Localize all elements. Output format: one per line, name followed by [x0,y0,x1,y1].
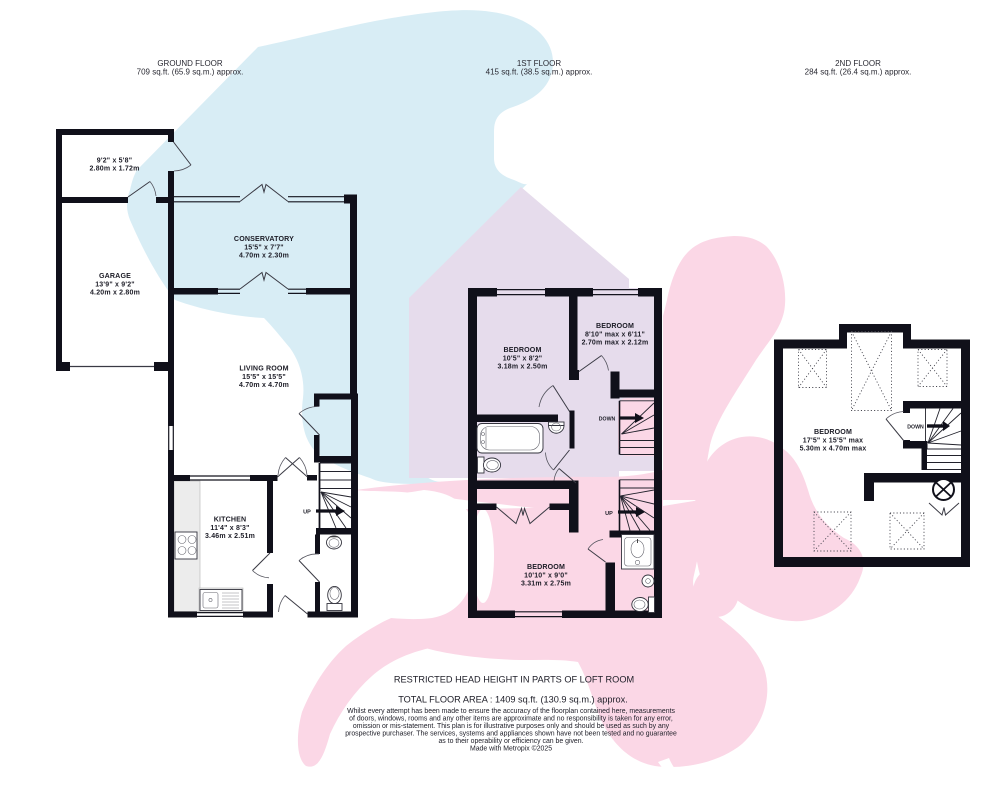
svg-text:13'9" x 9'2": 13'9" x 9'2" [95,282,135,289]
svg-text:10'10" x 9'0": 10'10" x 9'0" [524,573,568,580]
svg-text:15'5" x 15'5": 15'5" x 15'5" [242,374,286,381]
svg-text:CONSERVATORY: CONSERVATORY [234,235,294,243]
svg-text:2.80m x 1.72m: 2.80m x 1.72m [89,166,139,173]
svg-text:5.30m x 4.70m max: 5.30m x 4.70m max [800,446,867,453]
svg-text:284 sq.ft. (26.4 sq.m.) approx: 284 sq.ft. (26.4 sq.m.) approx. [805,68,912,77]
svg-text:2.70m max x 2.12m: 2.70m max x 2.12m [582,340,649,347]
svg-text:GARAGE: GARAGE [99,272,131,280]
svg-text:11'4" x 8'3": 11'4" x 8'3" [210,525,249,532]
svg-text:709 sq.ft. (65.9 sq.m.) approx: 709 sq.ft. (65.9 sq.m.) approx. [137,68,244,77]
svg-text:LIVING ROOM: LIVING ROOM [239,365,288,373]
svg-text:DOWN: DOWN [907,425,924,431]
svg-text:Made with Metropix ©2025: Made with Metropix ©2025 [470,745,552,753]
svg-text:KITCHEN: KITCHEN [214,516,247,524]
svg-text:4.70m x 2.30m: 4.70m x 2.30m [239,253,289,260]
svg-text:DOWN: DOWN [599,417,616,423]
svg-text:3.18m x 2.50m: 3.18m x 2.50m [497,364,547,371]
svg-text:8'10" max x 6'11": 8'10" max x 6'11" [585,332,645,339]
svg-text:UP: UP [605,511,613,517]
svg-text:BEDROOM: BEDROOM [814,428,852,436]
svg-text:4.70m x 4.70m: 4.70m x 4.70m [239,382,289,389]
svg-text:RESTRICTED HEAD HEIGHT IN PART: RESTRICTED HEAD HEIGHT IN PARTS OF LOFT … [394,675,634,685]
svg-text:9'2" x 5'8": 9'2" x 5'8" [97,158,133,165]
svg-text:BEDROOM: BEDROOM [596,322,634,330]
svg-text:prospective purchaser. The ser: prospective purchaser. The services, sys… [345,731,677,738]
svg-text:BEDROOM: BEDROOM [503,346,541,354]
svg-text:17'5" x 15'5" max: 17'5" x 15'5" max [803,438,863,445]
svg-text:UP: UP [303,510,311,516]
svg-text:10'5" x 8'2": 10'5" x 8'2" [503,356,543,363]
svg-text:omission or mis-statement. Thi: omission or mis-statement. This plan is … [353,723,670,730]
svg-text:BEDROOM: BEDROOM [527,563,565,571]
svg-text:4.20m x 2.80m: 4.20m x 2.80m [90,290,140,297]
svg-text:3.31m x 2.75m: 3.31m x 2.75m [521,581,571,588]
svg-text:TOTAL FLOOR AREA : 1409 sq.ft.: TOTAL FLOOR AREA : 1409 sq.ft. (130.9 sq… [398,695,628,705]
svg-text:3.46m x 2.51m: 3.46m x 2.51m [205,533,255,540]
svg-text:of doors, windows, rooms and a: of doors, windows, rooms and any other i… [349,716,673,723]
svg-text:as to their operability or eff: as to their operability or efficiency ca… [438,738,583,745]
svg-text:415 sq.ft. (38.5 sq.m.) approx: 415 sq.ft. (38.5 sq.m.) approx. [486,68,593,77]
svg-text:Whilst every attempt has been: Whilst every attempt has been made to en… [347,708,675,715]
svg-text:15'5" x 7'7": 15'5" x 7'7" [244,245,284,252]
